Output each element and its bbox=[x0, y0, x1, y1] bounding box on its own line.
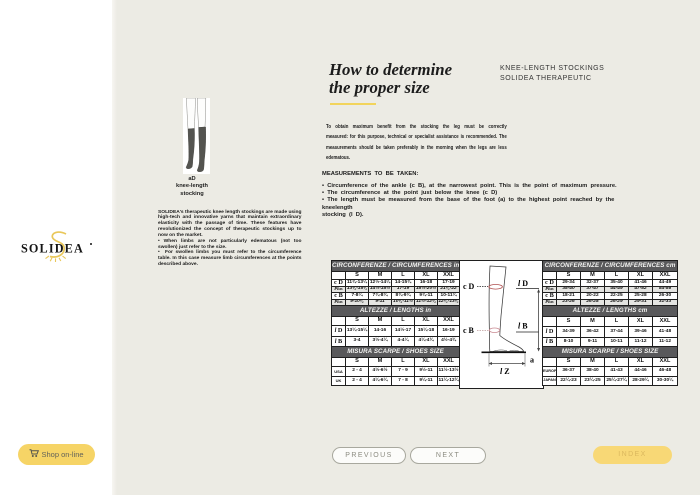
svg-text:c B: c B bbox=[463, 326, 475, 335]
svg-text:l Z: l Z bbox=[500, 367, 510, 376]
svg-text:l B: l B bbox=[518, 322, 528, 331]
svg-text:SOLIDEA: SOLIDEA bbox=[21, 242, 84, 256]
svg-text:a: a bbox=[530, 356, 534, 365]
svg-text:c D: c D bbox=[463, 282, 475, 291]
svg-text:l D: l D bbox=[518, 279, 528, 288]
